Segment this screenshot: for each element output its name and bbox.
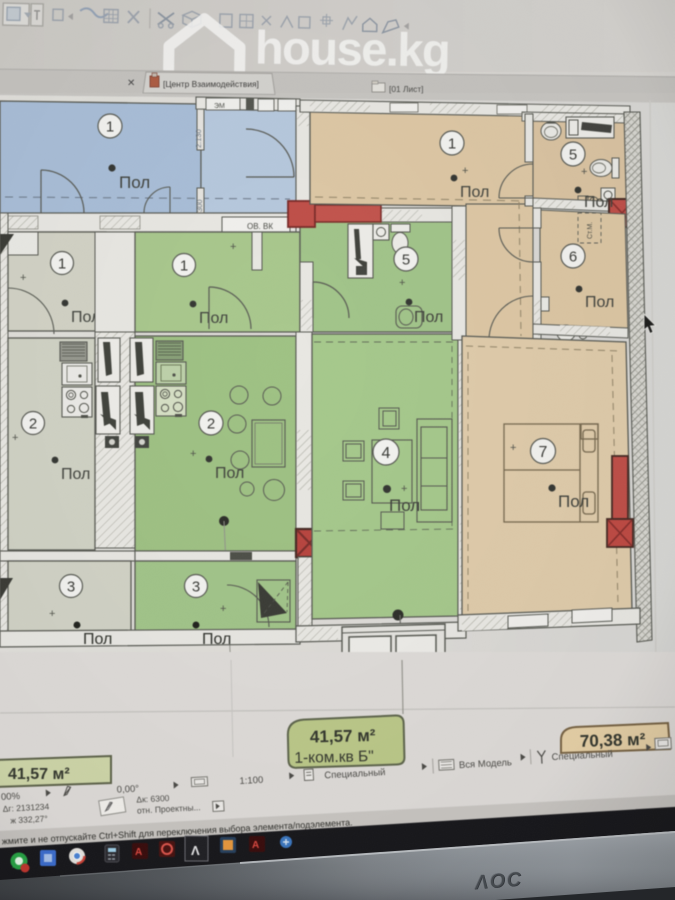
- svg-text:house.kg: house.kg: [255, 20, 450, 76]
- svg-text:✕: ✕: [127, 78, 135, 89]
- svg-text:[01 Лист]: [01 Лист]: [389, 84, 424, 94]
- svg-text:A: A: [135, 847, 142, 858]
- svg-text:A: A: [252, 840, 259, 851]
- svg-text:Пол: Пол: [83, 631, 112, 648]
- svg-text:Λ: Λ: [191, 843, 200, 858]
- svg-text:Пол: Пол: [202, 631, 231, 648]
- svg-text:[Центр Взаимодействия]: [Центр Взаимодействия]: [163, 79, 259, 89]
